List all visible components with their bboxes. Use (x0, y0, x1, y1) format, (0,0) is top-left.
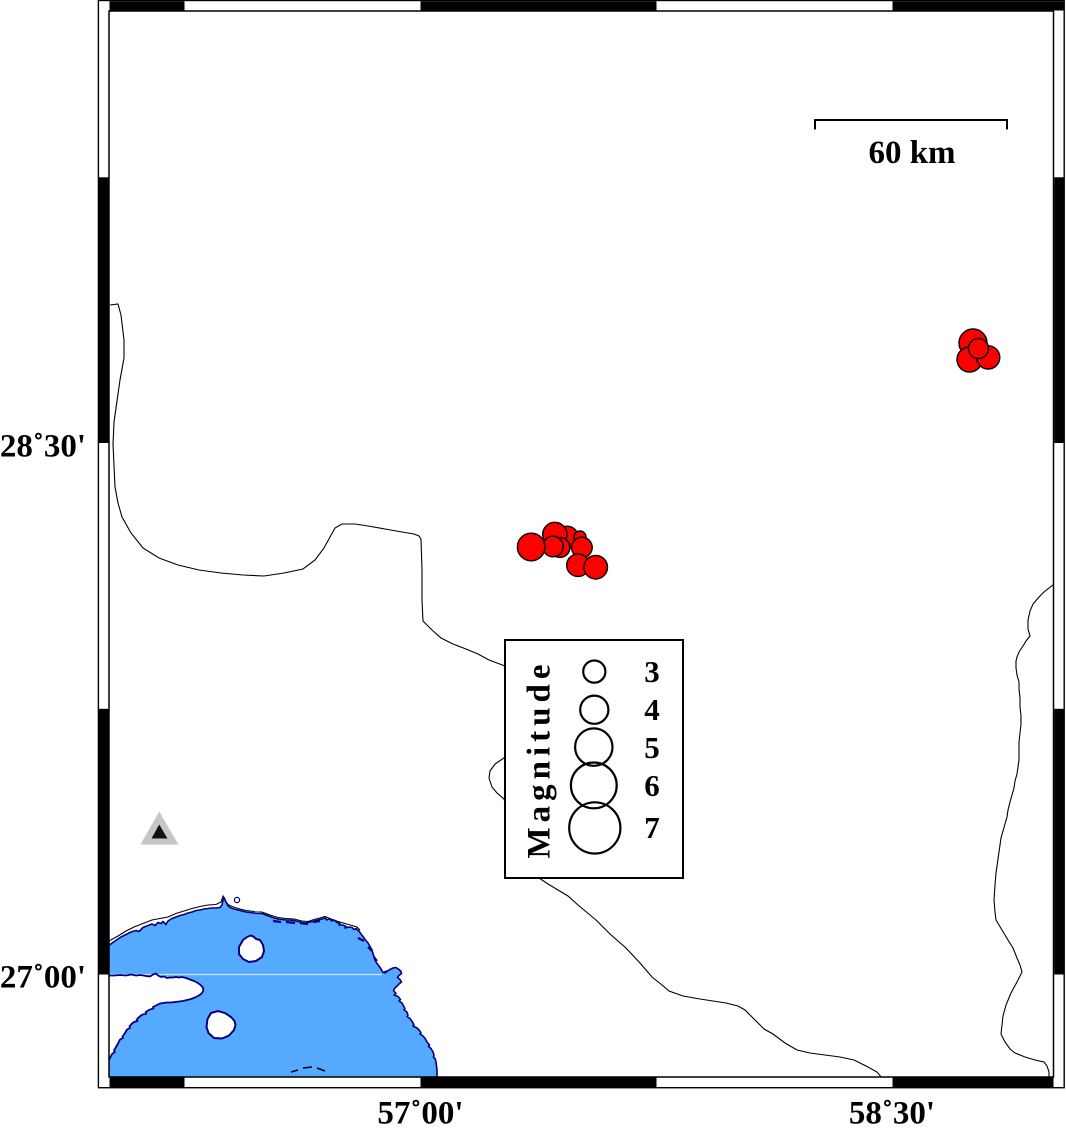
svg-text:60 km: 60 km (868, 135, 955, 171)
svg-text:57˚00': 57˚00' (377, 1096, 463, 1127)
svg-text:3: 3 (644, 654, 660, 689)
svg-text:58˚30': 58˚30' (849, 1096, 935, 1127)
svg-text:7: 7 (644, 810, 660, 845)
svg-text:4: 4 (644, 692, 660, 727)
svg-text:6: 6 (644, 768, 660, 803)
svg-text:27˚00': 27˚00' (0, 960, 86, 996)
svg-text:Magnitude: Magnitude (522, 659, 558, 858)
svg-text:5: 5 (644, 730, 660, 765)
svg-text:28˚30': 28˚30' (0, 429, 86, 465)
